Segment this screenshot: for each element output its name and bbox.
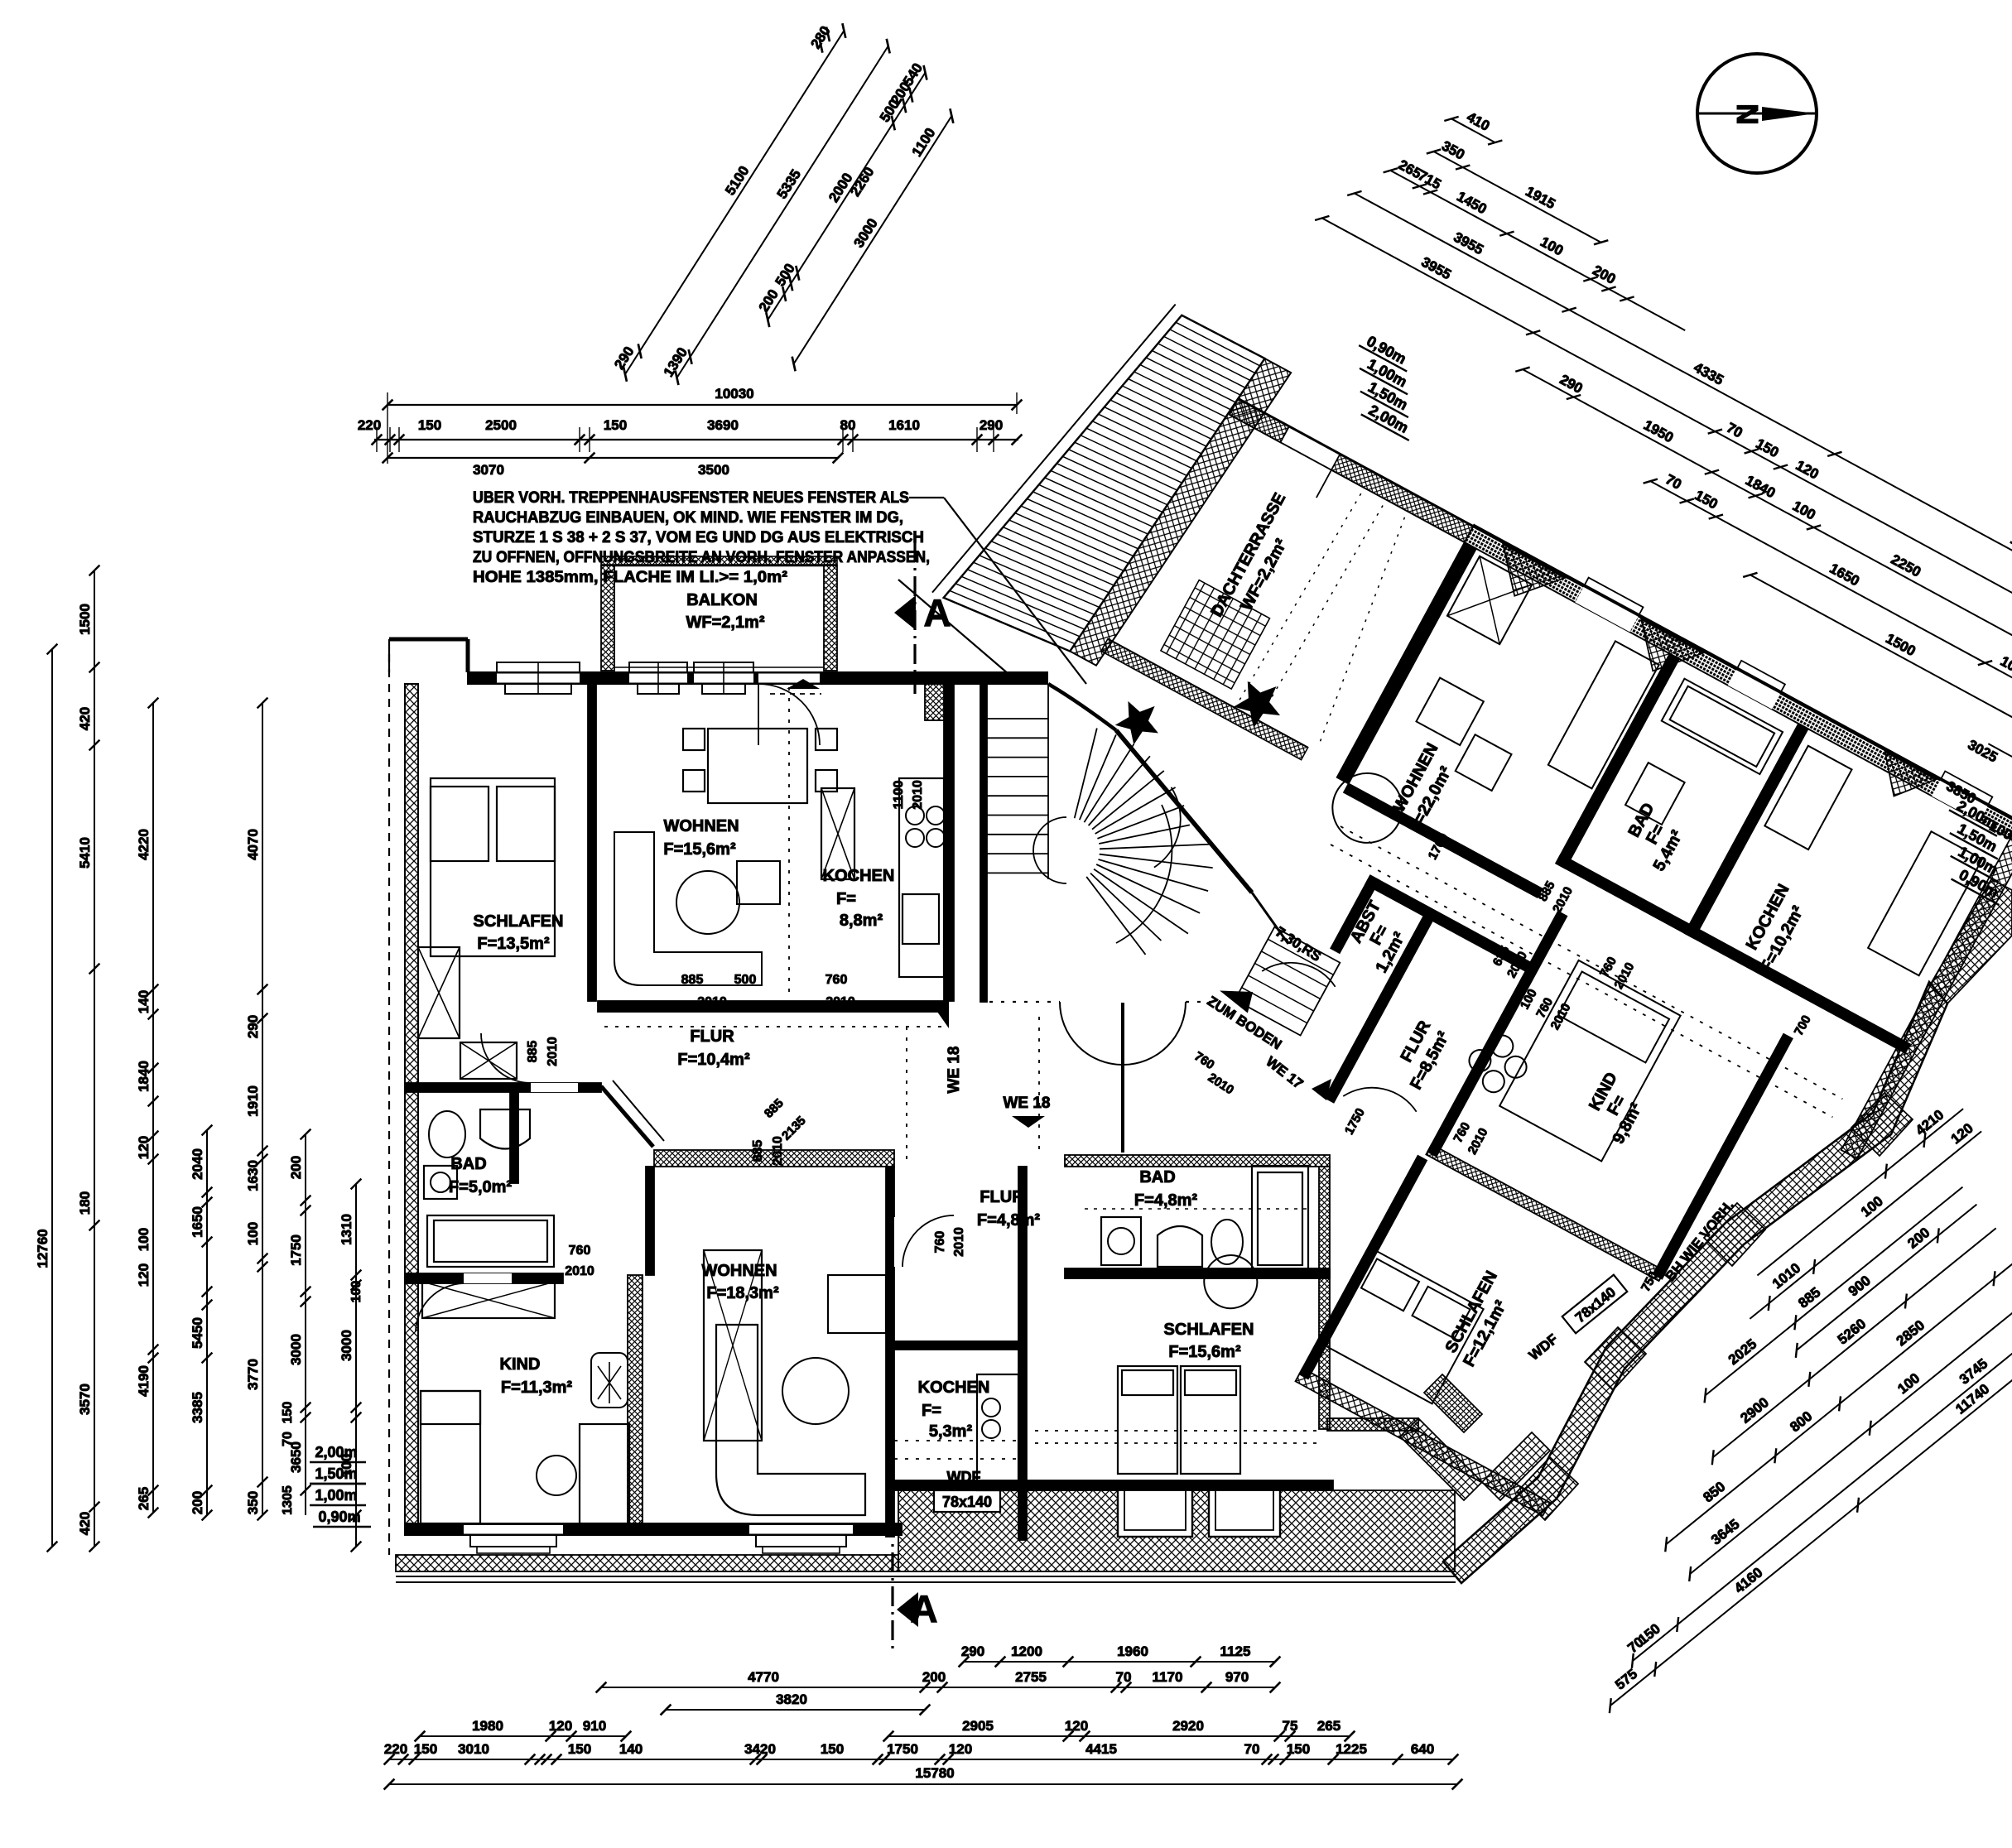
svg-text:F=4,8m²: F=4,8m² [1134,1191,1197,1210]
svg-text:F=11,3m²: F=11,3m² [501,1379,573,1397]
svg-text:2920: 2920 [1172,1718,1204,1734]
svg-text:3500: 3500 [698,462,729,478]
svg-text:140: 140 [136,990,152,1013]
svg-text:265: 265 [136,1487,152,1510]
svg-text:2010: 2010 [911,780,925,810]
svg-text:150: 150 [418,417,441,433]
svg-text:2500: 2500 [485,417,517,433]
svg-text:SCHLAFEN: SCHLAFEN [474,912,564,931]
svg-text:A: A [923,591,951,634]
svg-text:2755: 2755 [1015,1669,1047,1685]
svg-text:290: 290 [961,1643,984,1659]
svg-text:2010: 2010 [546,1037,560,1066]
svg-text:2010: 2010 [825,995,855,1009]
svg-text:KIND: KIND [500,1355,541,1374]
svg-text:120: 120 [1065,1718,1088,1734]
svg-text:120: 120 [949,1741,972,1757]
svg-text:350: 350 [245,1491,261,1514]
svg-text:5410: 5410 [77,837,93,869]
svg-text:4770: 4770 [748,1669,779,1685]
svg-text:3385: 3385 [190,1392,205,1423]
svg-text:SCHLAFEN: SCHLAFEN [1164,1321,1254,1339]
svg-text:F=15,6m²: F=15,6m² [663,840,736,859]
svg-text:2905: 2905 [962,1718,994,1734]
svg-text:1960: 1960 [1117,1643,1148,1659]
svg-text:4190: 4190 [136,1365,152,1397]
svg-text:70: 70 [1244,1741,1260,1757]
svg-text:BAD: BAD [450,1155,486,1173]
svg-text:3000: 3000 [288,1334,304,1365]
svg-text:640: 640 [1411,1741,1434,1757]
svg-text:WOHNEN: WOHNEN [701,1262,777,1280]
svg-text:100: 100 [245,1222,261,1245]
svg-text:220: 220 [358,417,381,433]
svg-text:220: 220 [384,1741,407,1757]
svg-text:150: 150 [281,1402,295,1424]
svg-text:420: 420 [77,1512,93,1535]
svg-text:F=: F= [922,1402,941,1420]
svg-text:885: 885 [681,973,704,987]
svg-text:1650: 1650 [190,1206,205,1238]
svg-text:12760: 12760 [35,1229,51,1268]
svg-text:3010: 3010 [458,1741,489,1757]
svg-text:F=15,6m²: F=15,6m² [1168,1343,1241,1361]
svg-text:3000: 3000 [339,1330,354,1361]
svg-text:1750: 1750 [288,1234,304,1266]
svg-text:WF=2,1m²: WF=2,1m² [686,614,764,632]
svg-text:885: 885 [751,1140,765,1162]
svg-text:F=4,8m²: F=4,8m² [977,1211,1040,1230]
svg-text:970: 970 [1225,1669,1249,1685]
svg-text:STURZE 1 S 38 + 2 S 37, VOM EG: STURZE 1 S 38 + 2 S 37, VOM EG UND DG AU… [473,528,924,546]
svg-text:760: 760 [569,1244,591,1258]
svg-text:760: 760 [933,1231,947,1254]
svg-text:1500: 1500 [77,604,93,635]
svg-text:BALKON: BALKON [686,591,758,609]
svg-text:290: 290 [245,1015,261,1038]
svg-text:500: 500 [734,973,757,987]
svg-text:1610: 1610 [888,417,920,433]
svg-text:265: 265 [1317,1718,1341,1734]
svg-text:1170: 1170 [1153,1669,1183,1685]
svg-text:120: 120 [549,1718,572,1734]
svg-text:WOHNEN: WOHNEN [663,817,739,835]
svg-text:F=10,4m²: F=10,4m² [677,1051,750,1069]
svg-text:FLUR: FLUR [980,1188,1024,1206]
svg-text:8,8m²: 8,8m² [840,912,883,930]
svg-text:1125: 1125 [1220,1643,1251,1659]
svg-text:A: A [910,1587,937,1630]
svg-text:120: 120 [136,1263,152,1287]
svg-text:150: 150 [568,1741,591,1757]
svg-text:150: 150 [414,1741,437,1757]
svg-text:150: 150 [1287,1741,1310,1757]
svg-text:100: 100 [349,1281,363,1303]
svg-text:F=5,0m²: F=5,0m² [449,1178,512,1196]
svg-text:5450: 5450 [190,1317,205,1349]
svg-text:75: 75 [1283,1718,1298,1734]
svg-text:5,3m²: 5,3m² [929,1422,973,1441]
svg-text:F=: F= [836,890,856,908]
svg-text:FLUR: FLUR [690,1027,734,1046]
svg-text:2010: 2010 [565,1264,594,1278]
svg-text:3570: 3570 [77,1384,93,1415]
svg-text:1310: 1310 [339,1214,354,1245]
svg-text:760: 760 [825,973,848,987]
svg-text:WE 18: WE 18 [946,1046,963,1093]
svg-text:885: 885 [526,1041,540,1063]
svg-text:2010: 2010 [952,1227,966,1257]
svg-text:3770: 3770 [245,1359,261,1390]
svg-text:120: 120 [136,1136,152,1159]
svg-text:910: 910 [583,1718,606,1734]
svg-text:1980: 1980 [472,1718,503,1734]
svg-text:4220: 4220 [136,829,152,860]
svg-text:150: 150 [821,1741,844,1757]
svg-text:2010: 2010 [697,995,727,1009]
svg-text:1100: 1100 [892,781,906,810]
svg-text:WE 18: WE 18 [1003,1095,1050,1112]
svg-text:2,00m: 2,00m [315,1444,357,1461]
svg-text:1225: 1225 [1336,1741,1367,1757]
svg-text:200: 200 [190,1491,205,1514]
svg-text:100: 100 [136,1228,152,1251]
svg-text:KOCHEN: KOCHEN [823,867,895,885]
svg-text:150: 150 [604,417,627,433]
svg-text:3820: 3820 [776,1692,807,1707]
svg-text:200: 200 [288,1156,304,1179]
svg-text:HOHE 1385mm, FLACHE IM LI.>= 1: HOHE 1385mm, FLACHE IM LI.>= 1,0m² [473,568,788,586]
svg-text:0,90m: 0,90m [318,1509,360,1525]
svg-text:RAUCHABZUG EINBAUEN, OK MIND.: RAUCHABZUG EINBAUEN, OK MIND. WIE FENSTE… [473,508,903,527]
svg-text:N: N [1730,103,1764,125]
svg-text:3420: 3420 [744,1741,776,1757]
svg-text:78x140: 78x140 [942,1494,992,1510]
svg-text:180: 180 [77,1191,93,1215]
svg-text:2040: 2040 [190,1148,205,1180]
svg-text:1,50m: 1,50m [315,1465,357,1482]
svg-text:2010: 2010 [771,1136,785,1166]
svg-text:1750: 1750 [887,1741,918,1757]
svg-text:1910: 1910 [245,1085,261,1117]
svg-text:420: 420 [77,707,93,730]
svg-text:3690: 3690 [707,417,739,433]
svg-text:10030: 10030 [715,386,753,402]
svg-text:290: 290 [980,417,1003,433]
svg-text:4070: 4070 [245,829,261,860]
svg-text:70: 70 [281,1432,295,1446]
svg-text:4415: 4415 [1085,1741,1117,1757]
svg-text:1200: 1200 [1011,1643,1042,1659]
svg-text:UBER VORH. TREPPENHAUSFENSTER: UBER VORH. TREPPENHAUSFENSTER NEUES FENS… [473,488,909,507]
svg-text:1840: 1840 [136,1061,152,1092]
svg-text:200: 200 [922,1669,946,1685]
svg-text:140: 140 [619,1741,643,1757]
svg-text:KOCHEN: KOCHEN [918,1379,990,1397]
svg-text:3070: 3070 [473,462,504,478]
svg-text:1630: 1630 [245,1160,261,1191]
svg-text:70: 70 [1116,1669,1132,1685]
svg-text:F=13,5m²: F=13,5m² [477,935,550,953]
svg-text:1305: 1305 [281,1485,295,1515]
svg-text:1,00m: 1,00m [315,1487,357,1504]
svg-text:BAD: BAD [1139,1168,1175,1186]
svg-text:WDF: WDF [947,1469,981,1485]
svg-text:15780: 15780 [915,1765,954,1781]
